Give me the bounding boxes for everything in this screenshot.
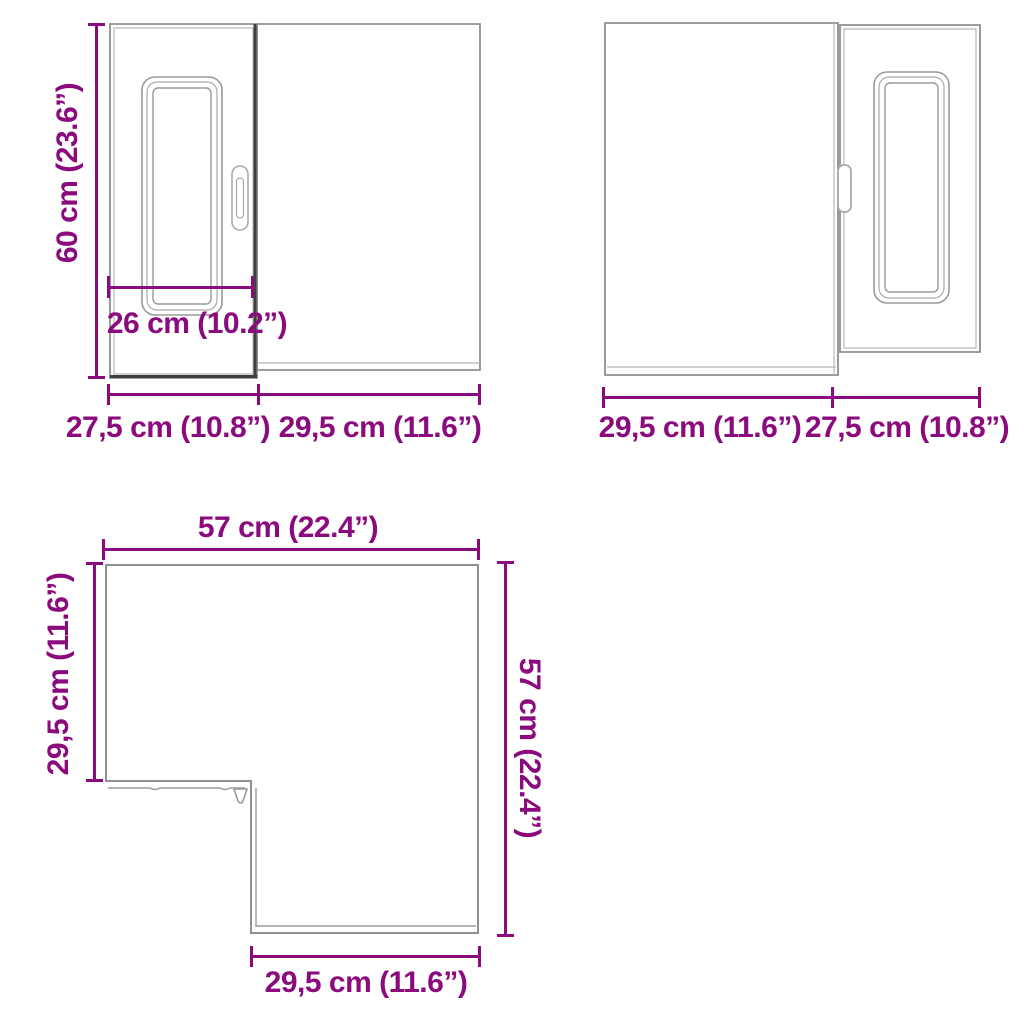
bottom-width-tick-left xyxy=(250,946,253,967)
right-depth-tick-top xyxy=(497,561,514,564)
dimension-diagram: 60 cm (23.6”) 26 cm (10.2”) 27,5 cm (10.… xyxy=(0,0,1024,1024)
right-depth-tick-bottom xyxy=(497,934,514,937)
left-depth-tick-top xyxy=(86,562,103,565)
right-depth-dimension-line xyxy=(504,562,507,937)
right-depth-label: 57 cm (22.4”) xyxy=(512,658,546,838)
corner-door-handle xyxy=(234,789,247,803)
top-width-tick-right xyxy=(477,539,480,560)
top-view-drawing xyxy=(90,555,500,950)
bottom-width-dimension-line xyxy=(251,955,480,958)
top-width-label: 57 cm (22.4”) xyxy=(198,511,378,545)
bottom-width-label: 29,5 cm (11.6”) xyxy=(265,966,468,1000)
bottom-width-tick-right xyxy=(478,946,481,967)
top-view: 57 cm (22.4”) 29,5 cm (11.6”) 57 cm (22.… xyxy=(0,0,1024,1024)
top-width-dimension-line xyxy=(103,548,480,551)
left-depth-label: 29,5 cm (11.6”) xyxy=(42,573,76,776)
door-edge-line-left-arm xyxy=(108,788,245,790)
left-depth-dimension-line xyxy=(93,563,96,782)
left-depth-tick-bottom xyxy=(86,779,103,782)
top-width-tick-left xyxy=(102,539,105,560)
l-shape-outline xyxy=(106,565,478,933)
